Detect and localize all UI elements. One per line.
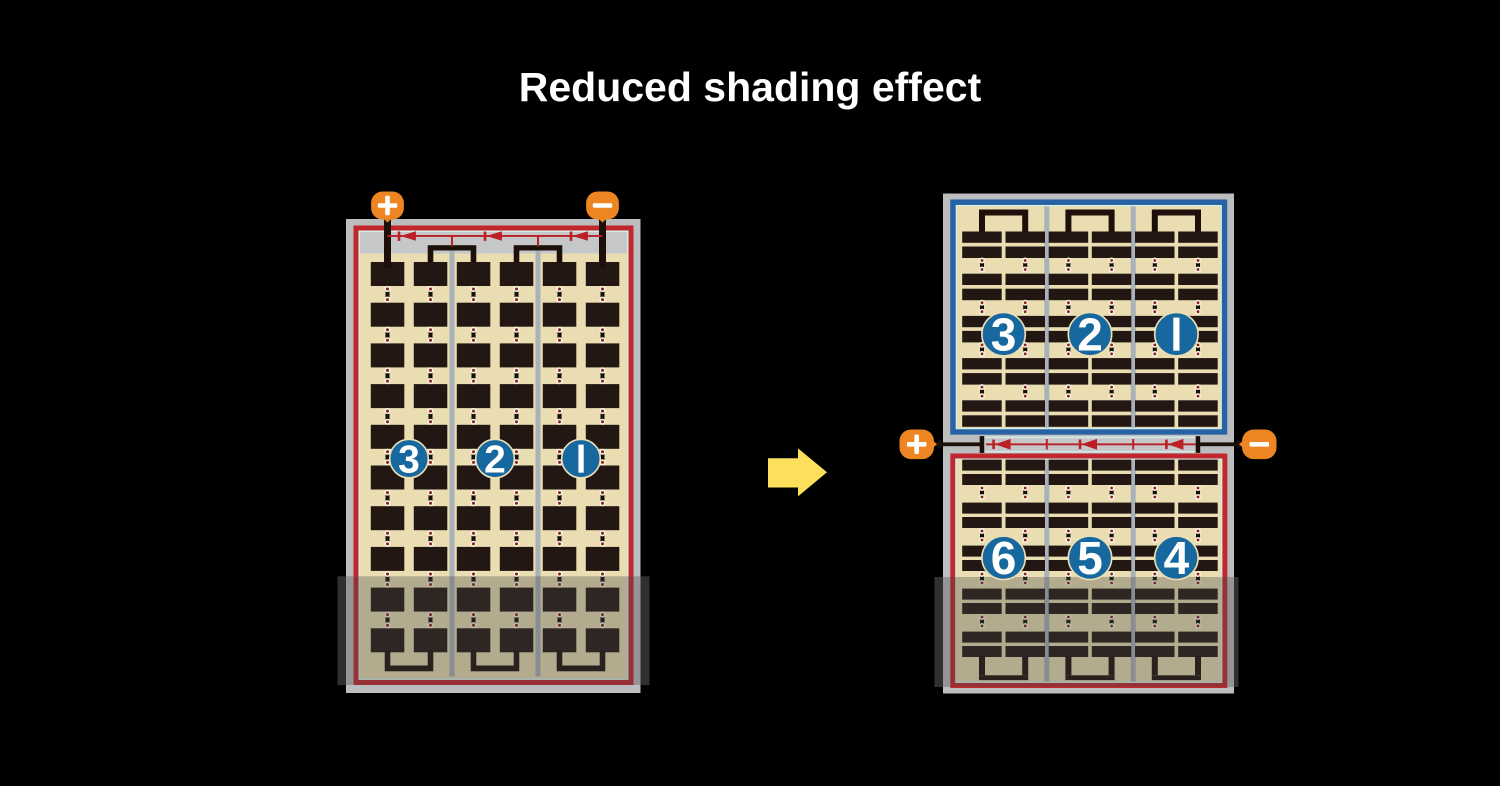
svg-text:3: 3 (398, 438, 420, 481)
svg-text:6: 6 (991, 532, 1017, 584)
svg-text:Reduced shading effect: Reduced shading effect (519, 64, 982, 110)
svg-text:2: 2 (1077, 309, 1103, 361)
svg-text:3: 3 (991, 309, 1017, 361)
svg-text:2: 2 (484, 438, 506, 481)
svg-text:5: 5 (1077, 532, 1103, 584)
svg-text:4: 4 (1164, 532, 1190, 584)
